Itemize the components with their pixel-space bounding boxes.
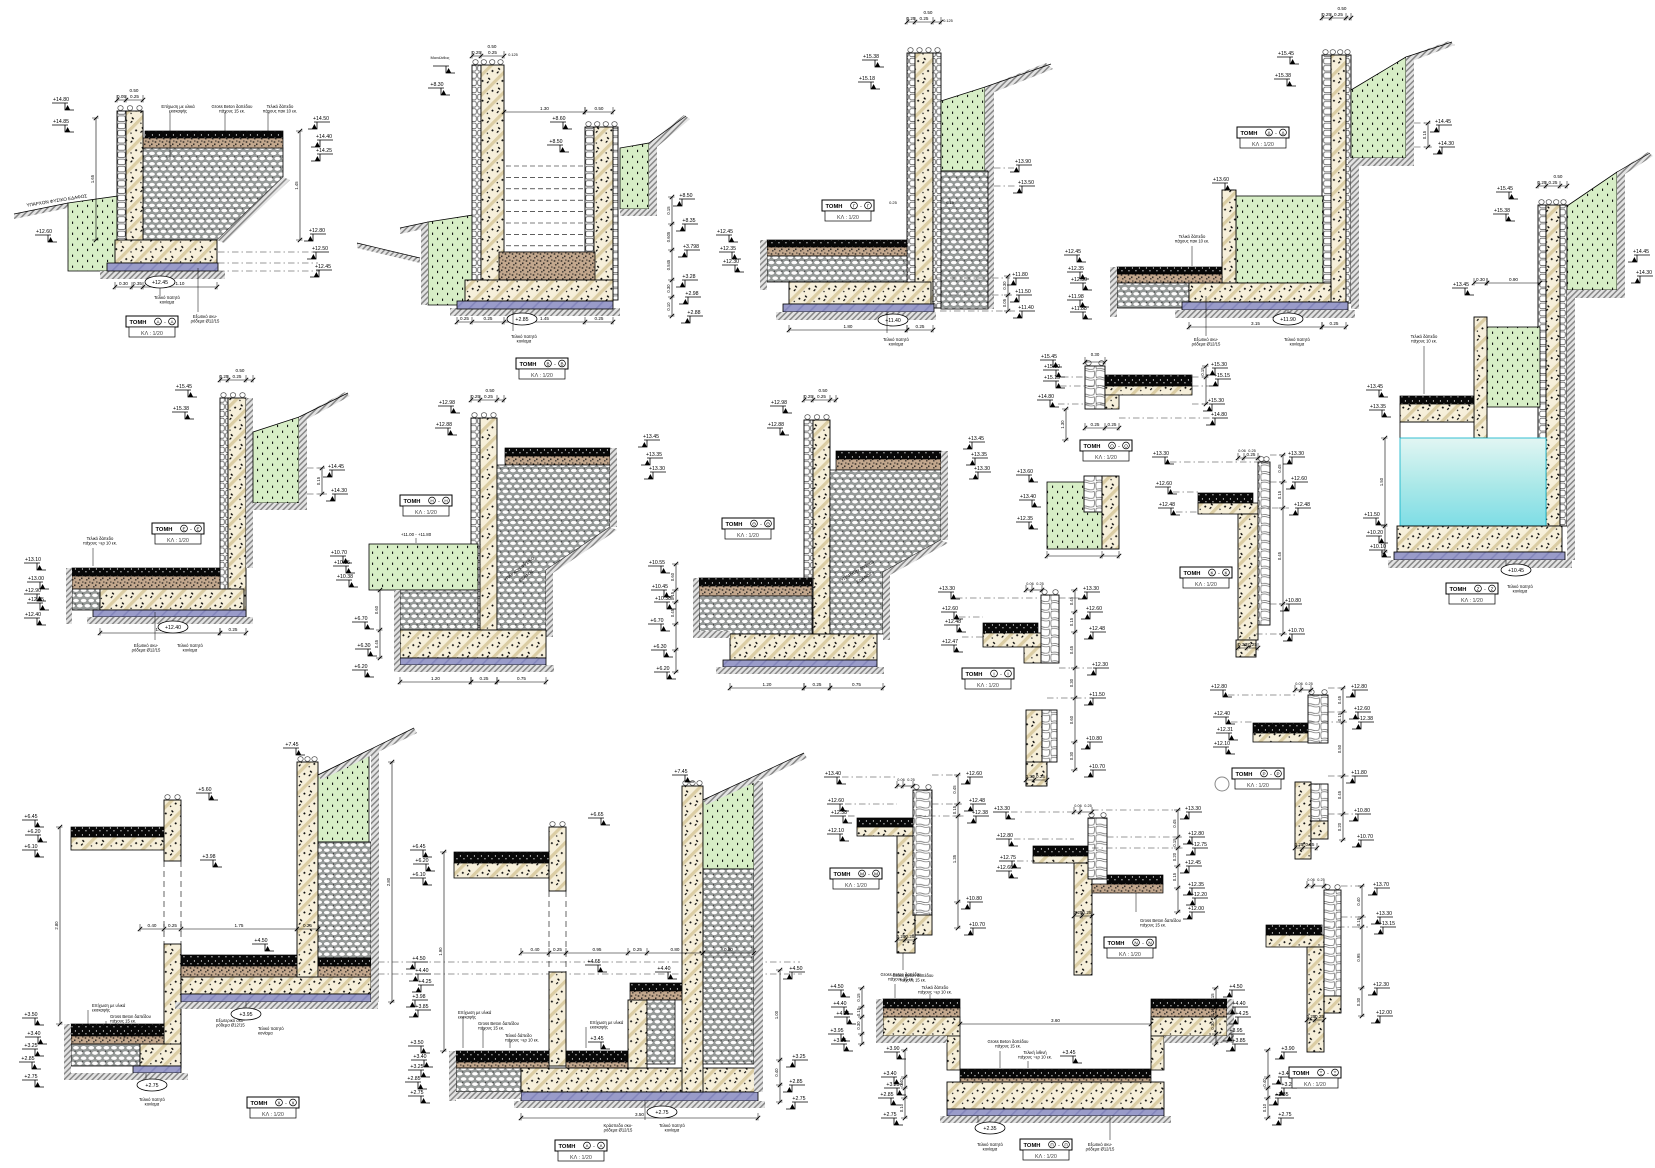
svg-text:Ρ: Ρ xyxy=(1262,771,1265,776)
svg-text:+12.30: +12.30 xyxy=(1092,662,1108,668)
svg-text:+3.798: +3.798 xyxy=(683,244,699,250)
svg-text:+12.40: +12.40 xyxy=(165,625,181,631)
svg-text:+13.60: +13.60 xyxy=(1017,469,1033,475)
svg-text:ΚΛ : 1/20: ΚΛ : 1/20 xyxy=(1247,783,1269,789)
svg-text:0.15: 0.15 xyxy=(1356,917,1361,926)
svg-text:+3.50: +3.50 xyxy=(410,1040,423,1046)
svg-text:+3.45: +3.45 xyxy=(590,1036,603,1042)
svg-text:0.25: 0.25 xyxy=(1305,682,1312,686)
svg-text:0.25: 0.25 xyxy=(480,676,489,681)
svg-text:0.75: 0.75 xyxy=(852,682,861,687)
svg-text:ΤΟΜΗ: ΤΟΜΗ xyxy=(1450,587,1467,593)
svg-text:+2.85: +2.85 xyxy=(880,1092,893,1098)
svg-text:+2.75: +2.75 xyxy=(410,1090,423,1096)
svg-text:0.50: 0.50 xyxy=(1337,744,1342,753)
svg-text:+12.00: +12.00 xyxy=(1188,906,1204,912)
svg-text:Ε: Ε xyxy=(182,526,185,531)
svg-text:+12.38: +12.38 xyxy=(1357,716,1373,722)
svg-text:+6.20: +6.20 xyxy=(656,666,669,672)
svg-text:+12.45: +12.45 xyxy=(152,280,168,286)
svg-text:+11.80: +11.80 xyxy=(1351,770,1367,776)
svg-text:0.25: 0.25 xyxy=(1084,804,1091,808)
svg-text:ΚΛ : 1/20: ΚΛ : 1/20 xyxy=(141,331,163,337)
svg-text:+3.95: +3.95 xyxy=(1229,1028,1242,1034)
svg-text:+13.35: +13.35 xyxy=(1370,404,1386,410)
svg-text:0.95: 0.95 xyxy=(1356,953,1361,962)
svg-text:1.80: 1.80 xyxy=(844,324,853,329)
svg-text:+12.60: +12.60 xyxy=(1086,606,1102,612)
svg-text:0.25: 0.25 xyxy=(889,200,898,205)
svg-text:0.25: 0.25 xyxy=(817,394,826,399)
svg-text:0.25: 0.25 xyxy=(460,316,469,321)
svg-text:+3.90: +3.90 xyxy=(886,1046,899,1052)
svg-text:ΚΛ : 1/20: ΚΛ : 1/20 xyxy=(570,1155,592,1161)
svg-text:0.25: 0.25 xyxy=(1074,910,1083,915)
svg-text:0.50: 0.50 xyxy=(819,388,828,393)
svg-text:κονίαμα: κονίαμα xyxy=(1290,342,1305,347)
svg-text:+3.25: +3.25 xyxy=(886,1082,899,1088)
svg-text:+13.45: +13.45 xyxy=(1367,384,1383,390)
svg-text:0.25: 0.25 xyxy=(233,374,242,379)
svg-text:+12.10: +12.10 xyxy=(828,828,844,834)
svg-text:+13.30: +13.30 xyxy=(1185,806,1201,812)
svg-text:+11.40: +11.40 xyxy=(885,318,901,324)
svg-text:+4.40: +4.40 xyxy=(415,968,428,974)
svg-text:πάχους ~ερ 10 εκ.: πάχους ~ερ 10 εκ. xyxy=(918,990,952,995)
svg-text:+10.70: +10.70 xyxy=(1288,628,1304,634)
svg-text:+13.45: +13.45 xyxy=(968,436,984,442)
svg-text:πάχους 15 εκ.: πάχους 15 εκ. xyxy=(478,1026,504,1031)
svg-text:+13.70: +13.70 xyxy=(1373,882,1389,888)
svg-text:0.40: 0.40 xyxy=(1356,897,1361,906)
svg-text:Ζ: Ζ xyxy=(1477,586,1480,591)
svg-text:+13.30: +13.30 xyxy=(1083,586,1099,592)
svg-text:+13.00: +13.00 xyxy=(28,576,44,582)
svg-text:0.15: 0.15 xyxy=(1210,993,1215,1002)
svg-text:ρόδεμα Ø12/15: ρόδεμα Ø12/15 xyxy=(1086,1147,1115,1152)
svg-text:0.30: 0.30 xyxy=(1091,352,1100,357)
svg-text:+12.45: +12.45 xyxy=(315,264,331,270)
svg-text:+2.75: +2.75 xyxy=(24,1074,37,1080)
svg-text:+2.75: +2.75 xyxy=(792,1096,805,1102)
svg-text:+4.25: +4.25 xyxy=(418,979,431,985)
svg-text:ΤΟΜΗ: ΤΟΜΗ xyxy=(559,1144,576,1150)
svg-text:+11.50: +11.50 xyxy=(1015,289,1031,295)
svg-text:Θ: Θ xyxy=(766,521,770,526)
svg-text:+13.35: +13.35 xyxy=(646,452,662,458)
svg-text:0.15: 0.15 xyxy=(1277,490,1282,499)
svg-text:1.10: 1.10 xyxy=(176,281,185,286)
svg-text:0.30: 0.30 xyxy=(1069,751,1074,760)
svg-text:ΤΟΜΗ: ΤΟΜΗ xyxy=(1024,1143,1041,1149)
svg-text:+10.10: +10.10 xyxy=(1370,544,1386,550)
svg-text:πάχους 10 εκ.: πάχους 10 εκ. xyxy=(1411,339,1437,344)
svg-text:+10.55: +10.55 xyxy=(334,560,350,566)
svg-text:Η: Η xyxy=(430,498,433,503)
svg-text:ΚΛ : 1/20: ΚΛ : 1/20 xyxy=(1035,1154,1057,1160)
svg-text:1.45: 1.45 xyxy=(294,181,299,190)
svg-text:+14.80: +14.80 xyxy=(53,97,69,103)
svg-text:+2.85: +2.85 xyxy=(21,1056,34,1062)
svg-text:+13.60: +13.60 xyxy=(1213,177,1229,183)
svg-text:+6.70: +6.70 xyxy=(650,618,663,624)
svg-text:+12.31: +12.31 xyxy=(1217,727,1233,733)
svg-text:0.25: 0.25 xyxy=(220,374,229,379)
svg-text:ΚΛ : 1/20: ΚΛ : 1/20 xyxy=(531,373,553,379)
svg-text:ΚΛ : 1/20: ΚΛ : 1/20 xyxy=(1119,952,1141,958)
svg-text:πάχους πακ 10 εκ.: πάχους πακ 10 εκ. xyxy=(1175,239,1210,244)
svg-text:Ι: Ι xyxy=(993,671,994,676)
svg-text:+6.45: +6.45 xyxy=(412,844,425,850)
svg-text:πάχους 15 εκ.: πάχους 15 εκ. xyxy=(995,1044,1021,1049)
svg-text:+13.40: +13.40 xyxy=(1020,494,1036,500)
svg-text:κονίαμα: κονίαμα xyxy=(889,342,904,347)
svg-text:+10.70: +10.70 xyxy=(969,922,985,928)
svg-text:0.25: 0.25 xyxy=(804,394,813,399)
svg-text:+6.45: +6.45 xyxy=(24,814,37,820)
svg-text:0.35: 0.35 xyxy=(133,281,142,286)
svg-text:+15.38: +15.38 xyxy=(1275,73,1291,79)
svg-text:+12.30: +12.30 xyxy=(723,259,739,265)
svg-text:+6.30: +6.30 xyxy=(357,643,370,649)
svg-text:πάχους 15 εκ.: πάχους 15 εκ. xyxy=(1140,923,1166,928)
svg-text:Ν: Ν xyxy=(1148,940,1151,945)
svg-text:εκσκαφής: εκσκαφής xyxy=(92,1008,110,1013)
svg-text:ΤΟΜΗ: ΤΟΜΗ xyxy=(1293,1071,1310,1077)
svg-text:0.40: 0.40 xyxy=(1262,1078,1267,1087)
svg-text:0.25: 0.25 xyxy=(168,923,177,928)
svg-text:+3.25: +3.25 xyxy=(24,1043,37,1049)
svg-text:+3.85: +3.85 xyxy=(833,1038,846,1044)
svg-text:0.25: 0.25 xyxy=(1538,180,1547,185)
svg-text:+12.80: +12.80 xyxy=(1188,831,1204,837)
svg-text:0.40: 0.40 xyxy=(774,1068,779,1077)
svg-text:0.30: 0.30 xyxy=(1476,277,1485,282)
svg-text:+12.60: +12.60 xyxy=(1156,481,1172,487)
svg-text:0.125: 0.125 xyxy=(508,53,518,57)
svg-text:+2.98: +2.98 xyxy=(685,291,698,297)
svg-text:0.15: 0.15 xyxy=(316,476,321,485)
svg-text:+3.85: +3.85 xyxy=(1232,1038,1245,1044)
svg-text:0.05: 0.05 xyxy=(117,94,126,99)
svg-text:Δ: Δ xyxy=(1281,130,1284,135)
svg-text:+12.47: +12.47 xyxy=(942,639,958,645)
svg-text:0.15: 0.15 xyxy=(856,993,861,1002)
svg-text:+14.45: +14.45 xyxy=(328,464,344,470)
svg-text:Ξ: Ξ xyxy=(1320,1070,1323,1075)
svg-text:0.25: 0.25 xyxy=(633,947,642,952)
svg-text:0.30: 0.30 xyxy=(856,1021,861,1030)
svg-text:0.60: 0.60 xyxy=(374,605,379,614)
svg-text:0.40: 0.40 xyxy=(531,947,540,952)
svg-text:+4.50: +4.50 xyxy=(254,938,267,944)
svg-text:πάχους ~ερ 10 εκ.: πάχους ~ερ 10 εκ. xyxy=(1018,1055,1052,1060)
svg-text:+12.75: +12.75 xyxy=(1000,855,1016,861)
svg-text:ΤΟΜΗ: ΤΟΜΗ xyxy=(966,672,983,678)
svg-text:+3.90: +3.90 xyxy=(1281,1046,1294,1052)
svg-text:ΤΟΜΗ: ΤΟΜΗ xyxy=(726,522,743,528)
svg-text:2.80: 2.80 xyxy=(386,877,391,886)
svg-text:ΤΟΜΗ: ΤΟΜΗ xyxy=(1108,941,1125,947)
svg-text:+13.30: +13.30 xyxy=(974,466,990,472)
svg-text:+13.45: +13.45 xyxy=(643,434,659,440)
svg-text:0.15: 0.15 xyxy=(1172,872,1177,881)
svg-text:+13.15: +13.15 xyxy=(1379,921,1395,927)
svg-text:+12.50: +12.50 xyxy=(312,246,328,252)
svg-text:0.30: 0.30 xyxy=(1002,281,1007,290)
svg-text:+12.10: +12.10 xyxy=(1214,741,1230,747)
svg-text:+10.55: +10.55 xyxy=(649,560,665,566)
svg-text:+6.70: +6.70 xyxy=(354,616,367,622)
svg-text:κονίαμα: κονίαμα xyxy=(665,1128,680,1133)
svg-text:ΤΟΜΗ: ΤΟΜΗ xyxy=(834,872,851,878)
svg-text:+10.70: +10.70 xyxy=(331,550,347,556)
svg-text:+15.45: +15.45 xyxy=(1497,186,1513,192)
svg-text:κονίαμα: κονίαμα xyxy=(160,300,175,305)
svg-text:ΤΟΜΗ: ΤΟΜΗ xyxy=(130,320,147,326)
svg-text:+7.45: +7.45 xyxy=(285,742,298,748)
svg-text:+14.85: +14.85 xyxy=(53,119,69,125)
svg-text:+8.60: +8.60 xyxy=(552,116,565,122)
svg-text:ΤΟΜΗ: ΤΟΜΗ xyxy=(520,362,537,368)
svg-text:0.25: 0.25 xyxy=(906,934,915,939)
svg-text:0.25: 0.25 xyxy=(303,923,312,928)
svg-text:+8.30: +8.30 xyxy=(430,82,443,88)
svg-text:κονίαμα: κονίαμα xyxy=(517,339,532,344)
svg-text:κονίαμα: κονίαμα xyxy=(1513,589,1528,594)
svg-text:+14.80: +14.80 xyxy=(1211,412,1227,418)
svg-text:ΚΛ : 1/20: ΚΛ : 1/20 xyxy=(415,510,437,516)
svg-text:ΤΟΜΗ: ΤΟΜΗ xyxy=(251,1101,268,1107)
svg-text:+15.45: +15.45 xyxy=(176,384,192,390)
svg-text:0.25: 0.25 xyxy=(1108,422,1117,427)
svg-text:+12.88: +12.88 xyxy=(436,422,452,428)
svg-text:+12.45: +12.45 xyxy=(1065,249,1081,255)
svg-text:+12.48: +12.48 xyxy=(1089,626,1105,632)
svg-text:πάχους 15 εκ.: πάχους 15 εκ. xyxy=(110,1019,136,1024)
svg-text:+11.40: +11.40 xyxy=(1018,305,1034,311)
svg-text:+13.30: +13.30 xyxy=(1288,451,1304,457)
svg-text:0.25: 0.25 xyxy=(484,316,493,321)
svg-text:+12.60: +12.60 xyxy=(997,865,1013,871)
svg-text:0.25: 0.25 xyxy=(1295,842,1304,847)
svg-text:1.20: 1.20 xyxy=(431,676,440,681)
svg-text:+12.35: +12.35 xyxy=(1068,266,1084,272)
svg-text:0.50: 0.50 xyxy=(1554,174,1563,179)
svg-text:+12.48: +12.48 xyxy=(1159,502,1175,508)
svg-text:ΤΟΜΗ: ΤΟΜΗ xyxy=(1236,772,1253,778)
svg-text:Δ: Δ xyxy=(1267,130,1270,135)
svg-text:0.25: 0.25 xyxy=(1549,180,1558,185)
svg-text:1.00: 1.00 xyxy=(774,1010,779,1019)
svg-text:0.25: 0.25 xyxy=(920,16,929,21)
svg-text:0.45: 0.45 xyxy=(1337,790,1342,799)
svg-text:+4.65: +4.65 xyxy=(587,959,600,965)
svg-text:+3.98: +3.98 xyxy=(412,994,425,1000)
svg-text:+12.30: +12.30 xyxy=(1373,982,1389,988)
svg-text:+2.35: +2.35 xyxy=(983,1126,996,1132)
svg-text:0.25: 0.25 xyxy=(1330,321,1339,326)
svg-text:0.10: 0.10 xyxy=(899,1103,904,1112)
svg-text:+13.45: +13.45 xyxy=(1453,282,1469,288)
svg-text:+12.35: +12.35 xyxy=(1017,516,1033,522)
svg-text:+4.40: +4.40 xyxy=(833,1001,846,1007)
svg-text:+15.38: +15.38 xyxy=(863,54,879,60)
svg-text:+12.60: +12.60 xyxy=(1354,706,1370,712)
svg-text:0.25: 0.25 xyxy=(1334,12,1343,17)
svg-text:+2.75: +2.75 xyxy=(1278,1112,1291,1118)
svg-text:+2.88: +2.88 xyxy=(687,310,700,316)
svg-text:+2.85: +2.85 xyxy=(515,317,528,323)
svg-text:+6.20: +6.20 xyxy=(354,664,367,670)
svg-text:0.15: 0.15 xyxy=(666,206,671,215)
svg-text:ΤΟΜΗ: ΤΟΜΗ xyxy=(156,527,173,533)
svg-text:Ζ: Ζ xyxy=(1491,586,1494,591)
svg-text:ρόδεμα Ø12/15: ρόδεμα Ø12/15 xyxy=(604,1128,633,1133)
svg-text:+15.38: +15.38 xyxy=(173,406,189,412)
svg-text:+3.40: +3.40 xyxy=(883,1071,896,1077)
svg-text:0.30: 0.30 xyxy=(119,281,128,286)
svg-text:+15.30: +15.30 xyxy=(1208,398,1224,404)
svg-text:+11.50: +11.50 xyxy=(1089,692,1105,698)
svg-text:+13.90: +13.90 xyxy=(1015,159,1031,165)
svg-text:0.25: 0.25 xyxy=(897,934,906,939)
svg-text:0.30: 0.30 xyxy=(1026,774,1035,779)
svg-text:0.605: 0.605 xyxy=(666,231,671,242)
svg-text:0.25: 0.25 xyxy=(484,394,493,399)
svg-text:+4.40: +4.40 xyxy=(1232,1001,1245,1007)
svg-text:+12.35: +12.35 xyxy=(1188,882,1204,888)
svg-text:+6.10: +6.10 xyxy=(412,872,425,878)
svg-text:ΚΛ : 1/20: ΚΛ : 1/20 xyxy=(837,215,859,221)
svg-text:+13.30: +13.30 xyxy=(939,586,955,592)
svg-text:0.15: 0.15 xyxy=(1069,617,1074,626)
svg-text:ΚΛ : 1/20: ΚΛ : 1/20 xyxy=(1195,582,1217,588)
svg-text:0.25: 0.25 xyxy=(1306,842,1315,847)
svg-text:0.25: 0.25 xyxy=(1248,449,1255,453)
svg-text:+12.38: +12.38 xyxy=(972,810,988,816)
svg-text:0.25: 0.25 xyxy=(488,50,497,55)
svg-text:ρόδεμα Ø12/15: ρόδεμα Ø12/15 xyxy=(1192,342,1221,347)
svg-text:2.80: 2.80 xyxy=(54,921,59,930)
svg-text:+10.45: +10.45 xyxy=(1508,568,1524,574)
svg-text:0.50: 0.50 xyxy=(486,388,495,393)
svg-text:πάχους 15 εκ.: πάχους 15 εκ. xyxy=(219,109,245,114)
svg-text:0.80: 0.80 xyxy=(724,947,733,952)
svg-text:+11.98: +11.98 xyxy=(1068,294,1084,300)
svg-text:0.95: 0.95 xyxy=(593,947,602,952)
svg-text:+4.50: +4.50 xyxy=(1229,984,1242,990)
svg-text:+3.85: +3.85 xyxy=(415,1004,428,1010)
svg-text:+15.30: +15.30 xyxy=(1211,362,1227,368)
svg-text:+12.98: +12.98 xyxy=(771,400,787,406)
svg-text:0.125: 0.125 xyxy=(943,19,953,23)
svg-text:0.10: 0.10 xyxy=(666,302,671,311)
svg-text:0.25: 0.25 xyxy=(1248,642,1257,647)
svg-text:+15.15: +15.15 xyxy=(1044,375,1060,381)
svg-text:0.25: 0.25 xyxy=(1091,422,1100,427)
svg-text:0.25: 0.25 xyxy=(1036,582,1043,586)
svg-text:0.25: 0.25 xyxy=(471,394,480,399)
svg-text:+12.75: +12.75 xyxy=(1191,842,1207,848)
svg-text:0.45: 0.45 xyxy=(1069,645,1074,654)
svg-text:1.35: 1.35 xyxy=(952,854,957,863)
svg-text:0.25: 0.25 xyxy=(916,324,925,329)
svg-text:0.30: 0.30 xyxy=(1069,678,1074,687)
svg-text:1.30: 1.30 xyxy=(540,106,549,111)
svg-text:ΚΛ : 1/20: ΚΛ : 1/20 xyxy=(1461,598,1483,604)
svg-text:+10.38: +10.38 xyxy=(337,574,353,580)
svg-text:0.45: 0.45 xyxy=(1172,819,1177,828)
svg-text:Ε: Ε xyxy=(196,526,199,531)
svg-text:0.50: 0.50 xyxy=(595,106,604,111)
svg-text:+12.30: +12.30 xyxy=(1071,277,1087,283)
svg-text:+13.30: +13.30 xyxy=(1153,451,1169,457)
svg-text:1.50: 1.50 xyxy=(1379,477,1384,486)
svg-text:Θ: Θ xyxy=(752,521,756,526)
svg-text:+2.85: +2.85 xyxy=(407,1076,420,1082)
svg-text:+14.45: +14.45 xyxy=(1435,119,1451,125)
svg-text:+2.75: +2.75 xyxy=(883,1112,896,1118)
svg-text:0.06: 0.06 xyxy=(1074,804,1081,808)
svg-text:+2.85: +2.85 xyxy=(1275,1092,1288,1098)
svg-text:0.25: 0.25 xyxy=(130,94,139,99)
svg-text:+12.80: +12.80 xyxy=(309,228,325,234)
svg-text:0.15: 0.15 xyxy=(1422,130,1427,139)
svg-text:0.45: 0.45 xyxy=(374,639,379,648)
svg-text:0.15: 0.15 xyxy=(670,591,675,600)
svg-text:Β: Β xyxy=(546,361,549,366)
svg-text:+12.80: +12.80 xyxy=(1351,684,1367,690)
svg-text:+15.45: +15.45 xyxy=(1041,354,1057,360)
svg-text:+13.30: +13.30 xyxy=(649,466,665,472)
svg-text:0.45: 0.45 xyxy=(1337,695,1342,704)
svg-text:ΤΟΜΗ: ΤΟΜΗ xyxy=(826,204,843,210)
svg-text:+6.10: +6.10 xyxy=(24,844,37,850)
svg-text:3.15: 3.15 xyxy=(1251,321,1260,326)
svg-text:0.05: 0.05 xyxy=(1002,298,1007,307)
svg-text:0.45: 0.45 xyxy=(670,608,675,617)
svg-text:+4.25: +4.25 xyxy=(1235,1011,1248,1017)
svg-text:3.50: 3.50 xyxy=(635,1112,644,1117)
svg-text:+12.80: +12.80 xyxy=(1211,684,1227,690)
svg-text:+3.98: +3.98 xyxy=(202,854,215,860)
svg-text:0.15: 0.15 xyxy=(1200,367,1205,376)
svg-text:+13.35: +13.35 xyxy=(971,452,987,458)
svg-text:0.15: 0.15 xyxy=(946,200,955,205)
svg-text:+14.50: +14.50 xyxy=(313,116,329,122)
svg-text:κονίαμα: κονίαμα xyxy=(183,648,198,653)
svg-text:0.15: 0.15 xyxy=(1337,712,1342,721)
svg-text:Ο: Ο xyxy=(1110,443,1114,448)
svg-text:ΤΟΜΗ: ΤΟΜΗ xyxy=(1084,444,1101,450)
svg-text:0.25: 0.25 xyxy=(1083,910,1092,915)
svg-text:+13.30: +13.30 xyxy=(1376,911,1392,917)
svg-text:0.50: 0.50 xyxy=(236,368,245,373)
svg-text:ΚΛ : 1/20: ΚΛ : 1/20 xyxy=(262,1112,284,1118)
svg-text:+12.38: +12.38 xyxy=(831,810,847,816)
svg-text:+5.60: +5.60 xyxy=(198,787,211,793)
svg-text:0.06: 0.06 xyxy=(1307,878,1314,882)
svg-text:+10.70: +10.70 xyxy=(1089,764,1105,770)
svg-text:+14.45: +14.45 xyxy=(1633,249,1649,255)
svg-text:0.06: 0.06 xyxy=(1295,682,1302,686)
svg-text:1.65: 1.65 xyxy=(90,174,95,183)
svg-text:Ν: Ν xyxy=(1134,940,1137,945)
svg-text:0.25: 0.25 xyxy=(1315,1014,1324,1019)
svg-text:Π: Π xyxy=(1050,1142,1053,1147)
svg-text:3.60: 3.60 xyxy=(1051,1018,1060,1023)
